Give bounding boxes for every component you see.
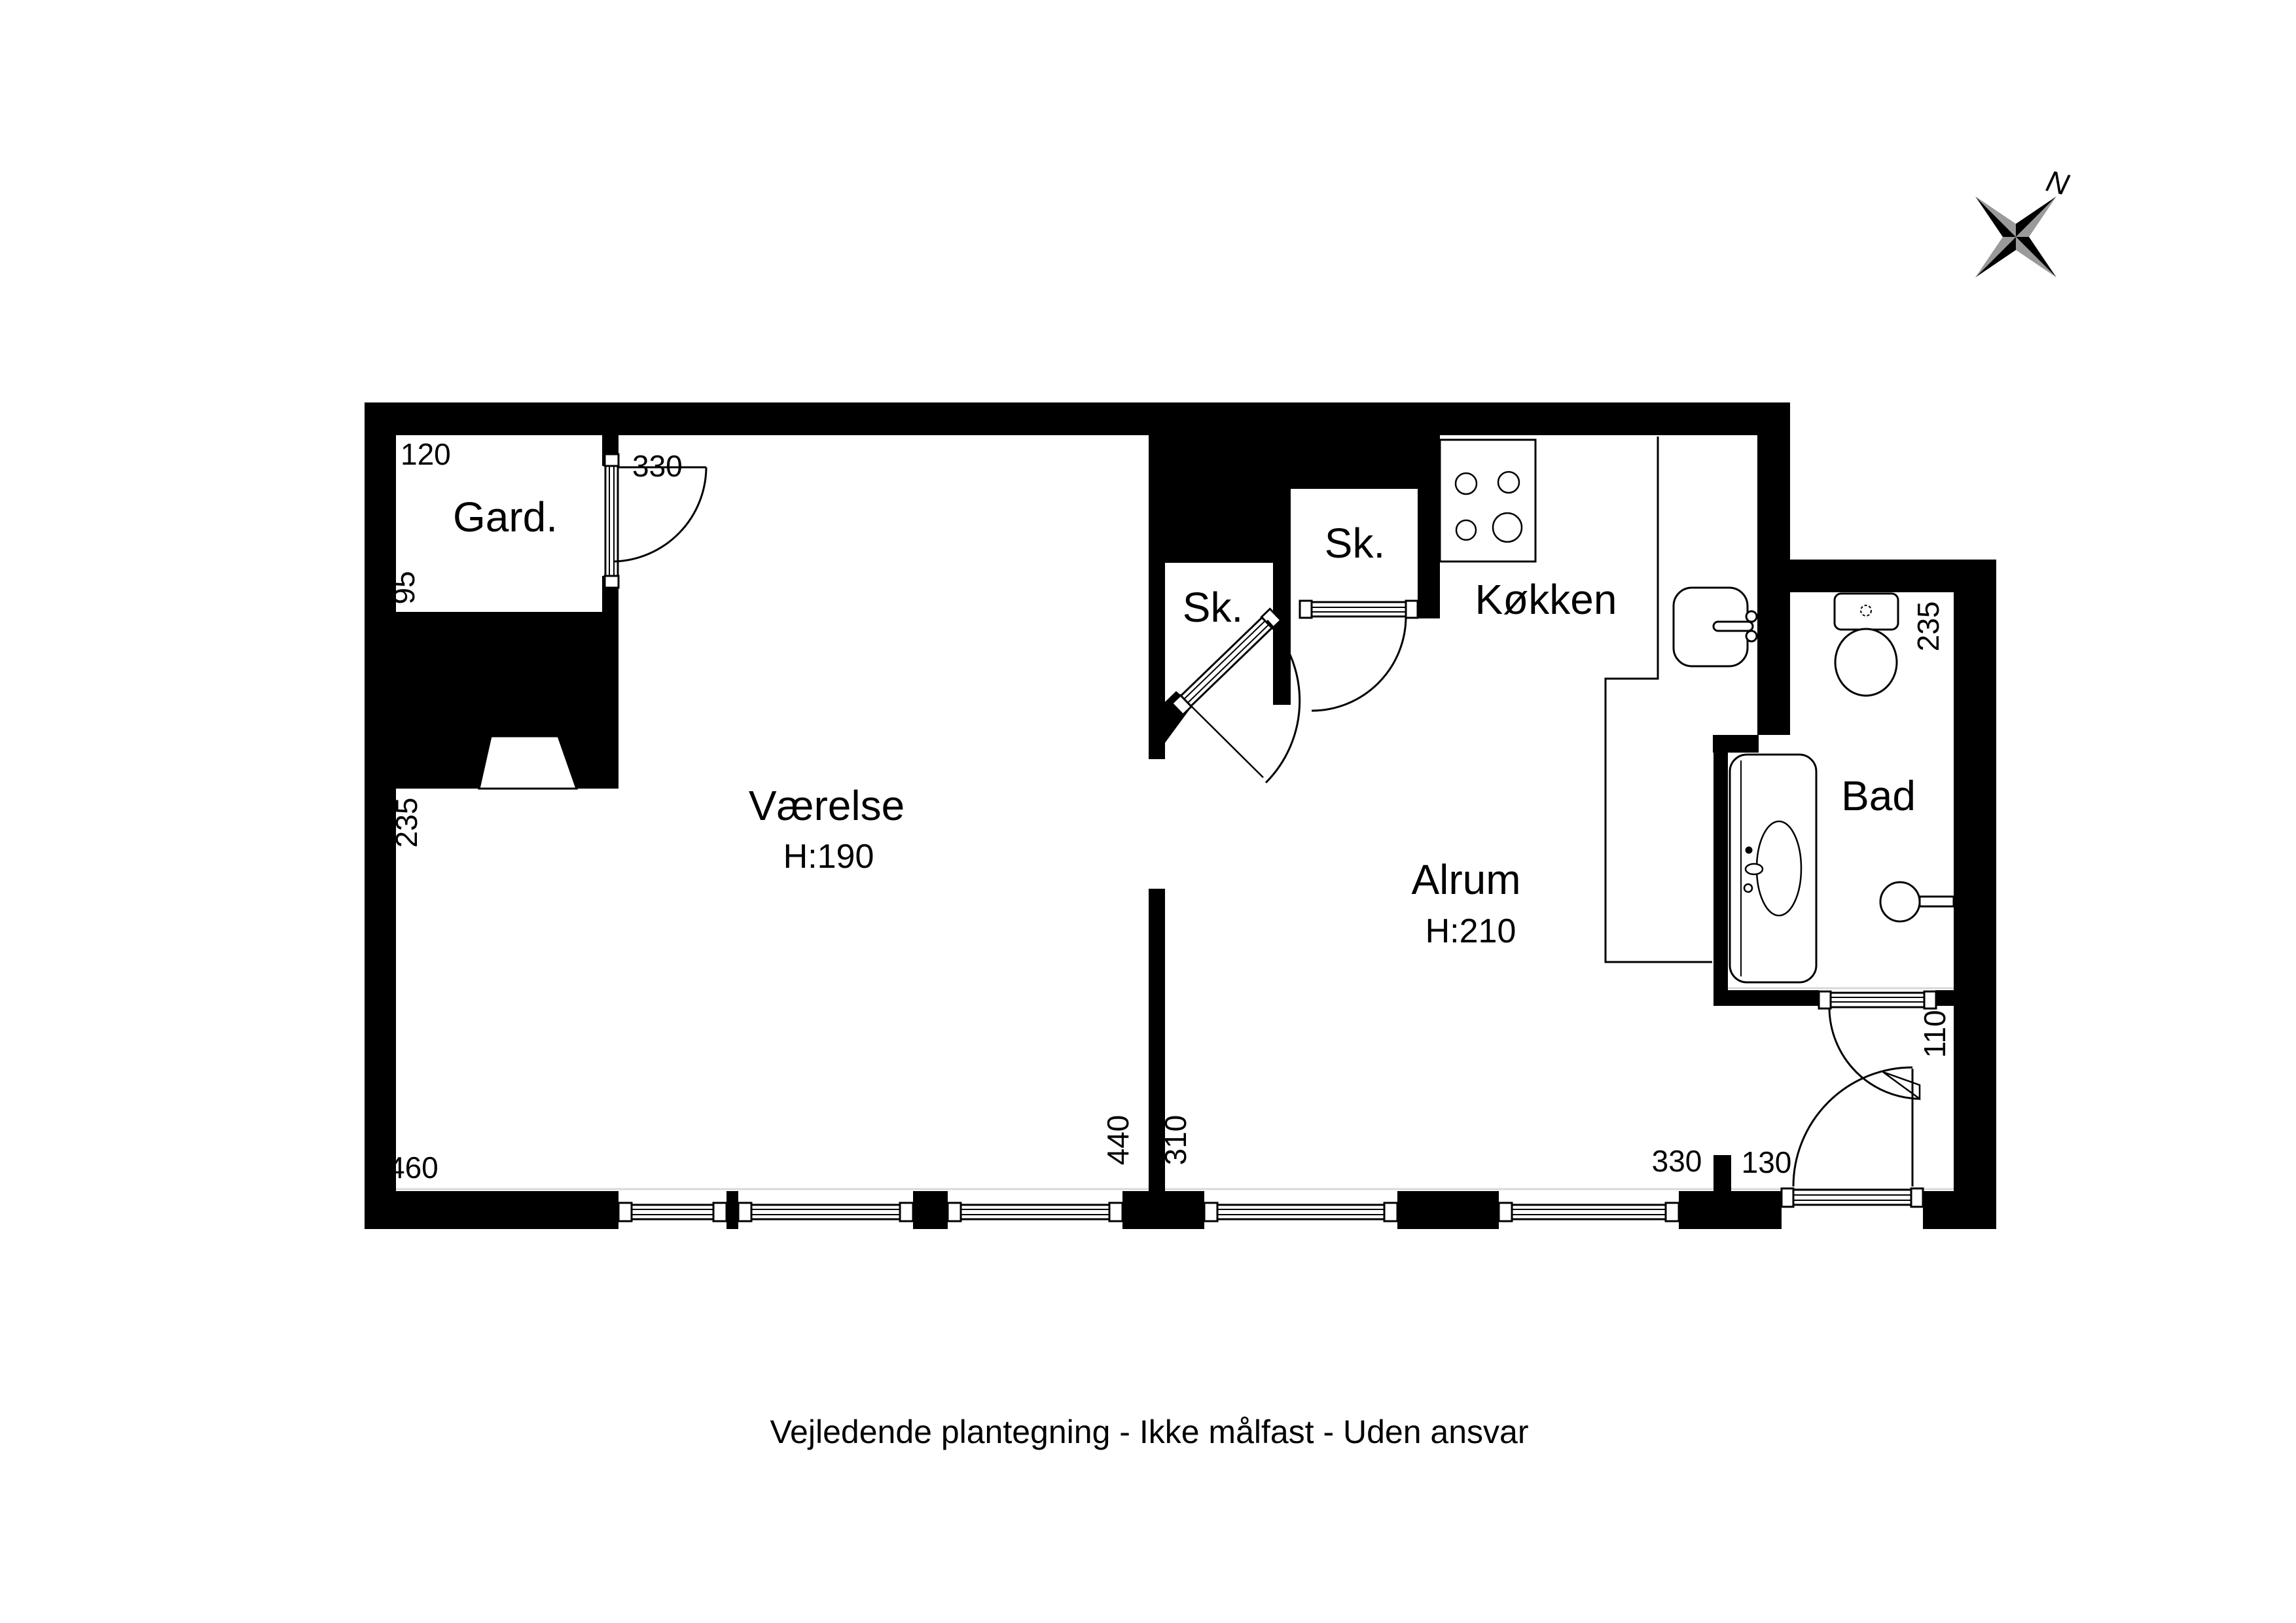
bath-door-leaf [1883, 1072, 1920, 1099]
north-label: N [2043, 164, 2073, 202]
wall-jog-stub [1713, 735, 1759, 753]
room-height-alrum: H:210 [1426, 912, 1516, 950]
caption: Vejledende plantegning - Ikke målfast - … [770, 1414, 1528, 1450]
compass-rose: N [1975, 164, 2073, 277]
faucet-detail [1746, 847, 1753, 854]
toilet-icon [1835, 594, 1898, 696]
faucet-detail [1744, 884, 1752, 892]
wall-pier-nub [1713, 1155, 1731, 1192]
wall-bath-top [1757, 560, 1996, 592]
room-label-sk-left: Sk. [1183, 584, 1243, 631]
dim-entrance-door: 130 [1742, 1145, 1792, 1179]
dim-vaerelse-left: 235 [389, 798, 423, 848]
window [1499, 1203, 1679, 1221]
dim-alrum-window: 330 [1652, 1144, 1702, 1178]
wall-above-sk-right [1291, 435, 1418, 489]
flue-niche [479, 736, 577, 789]
dim-alrum-width: 310 [1158, 1115, 1193, 1166]
stove-icon [1440, 440, 1535, 562]
wall-bottom-segment [913, 1191, 948, 1229]
room-label-vaerelse: Værelse [749, 782, 905, 829]
kitchen-counter [1605, 437, 1712, 962]
room-label-koekken: Køkken [1475, 576, 1617, 623]
wall-bath-left [1713, 753, 1728, 1006]
shower-icon [1880, 882, 1954, 921]
dim-vaerelse-width: 440 [1101, 1115, 1135, 1166]
window [619, 1203, 726, 1221]
wall-right-of-sk [1418, 435, 1440, 618]
wall-between-sk [1273, 435, 1291, 705]
dim-vaerelse-bottom: 460 [388, 1150, 439, 1185]
wall-bottom-segment [1122, 1191, 1204, 1229]
room-label-gard: Gard. [453, 493, 558, 541]
dim-bad-right: 235 [1911, 601, 1945, 652]
room-label-alrum: Alrum [1411, 856, 1520, 903]
wall-kitchen-bath [1757, 435, 1790, 735]
vanity-icon [1730, 755, 1816, 982]
kitchen-sink-icon [1674, 588, 1757, 666]
wall-bottom-segment [365, 1191, 619, 1229]
dim-gard-depth: 95 [387, 571, 421, 604]
dim-gard-width: 120 [401, 437, 451, 471]
wall-top [365, 402, 1790, 435]
window [738, 1203, 913, 1221]
faucet-detail [1746, 864, 1763, 874]
window [1204, 1203, 1397, 1221]
floor-plan: N Gard. Værelse H:190 Alrum H:210 Køkken… [0, 0, 2296, 1623]
room-label-bad: Bad [1841, 772, 1916, 819]
wall-bottom-segment [1923, 1191, 1996, 1229]
wall-bath-bottom-right [1935, 990, 1954, 1006]
wall-bath-bottom-left [1713, 990, 1819, 1006]
window [948, 1203, 1122, 1221]
sk-closet-door [1300, 601, 1418, 711]
wall-bottom-segment [726, 1191, 738, 1229]
room-height-vaerelse: H:190 [783, 838, 874, 876]
dim-bad-door: 110 [1918, 1010, 1952, 1058]
entrance-door [1782, 1067, 1923, 1207]
wall-right [1954, 560, 1996, 1229]
wall-bottom-segment [1397, 1191, 1499, 1229]
wall-bottom-segment [1679, 1191, 1782, 1229]
wall-above-sk-left [1165, 435, 1273, 563]
room-label-sk-right: Sk. [1325, 520, 1385, 567]
dim-gard-door: 330 [632, 449, 683, 483]
